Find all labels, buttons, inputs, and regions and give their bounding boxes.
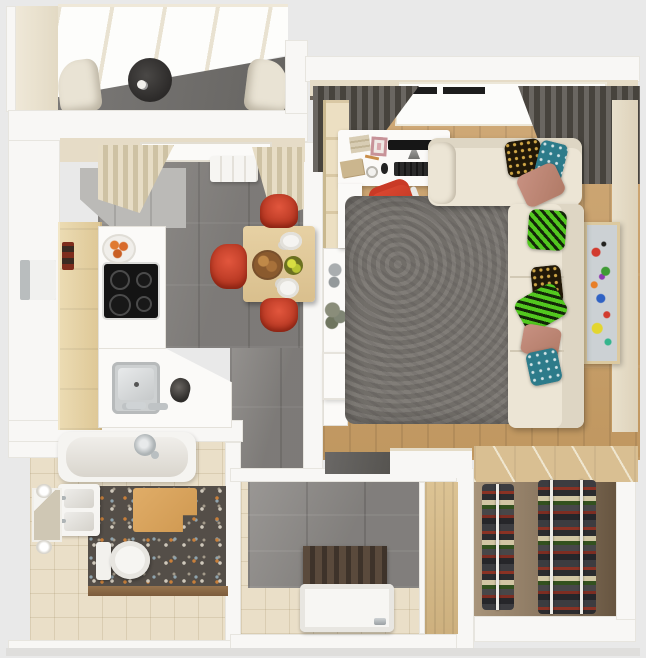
wall-closet-right	[616, 480, 636, 620]
kitchen-sink	[112, 362, 160, 414]
kitchen-floor-lower	[230, 348, 305, 470]
shower-slat-panel	[303, 546, 387, 588]
clothes-rack	[538, 480, 596, 614]
pink-notebook	[370, 136, 387, 156]
sink-faucet	[126, 402, 146, 409]
bathtub-basin	[66, 437, 188, 477]
fridge	[20, 260, 56, 300]
cooktop-burner	[109, 294, 131, 316]
balcony-left-wall	[16, 6, 60, 112]
desk-cup	[366, 166, 378, 178]
bathroom-wood-edge	[88, 586, 228, 596]
cooktop-burner	[136, 296, 152, 312]
coffee-cup	[137, 80, 146, 89]
clothes-rail	[496, 484, 499, 610]
wall-living-top	[305, 56, 640, 82]
wall-closet-bottom	[474, 616, 636, 642]
kitchen-radiator	[210, 156, 258, 182]
dining-chair-bottom	[260, 298, 298, 332]
dining-chair-left	[210, 244, 247, 289]
clothes-rail	[550, 480, 553, 614]
cooktop	[104, 264, 158, 318]
spice-jars	[62, 242, 74, 270]
floorplan-scene	[0, 0, 646, 658]
corridor-tile-threshold	[325, 452, 393, 474]
toilet-tank	[96, 542, 111, 580]
basin	[64, 512, 94, 531]
shower-door-panel	[425, 482, 458, 634]
clothes-rail	[580, 480, 583, 614]
bread-bowl	[254, 252, 281, 278]
sink-drain	[134, 382, 139, 387]
dinner-plate	[280, 232, 302, 250]
basin	[64, 489, 94, 508]
toilet-bowl	[110, 541, 150, 579]
pillow-teal	[525, 347, 563, 387]
oranges-bowl	[104, 236, 134, 262]
dining-chair-top	[260, 194, 298, 228]
outer-shadow	[6, 648, 640, 656]
books-stack	[349, 135, 371, 154]
wall-sconce	[36, 484, 52, 498]
balcony-side-table	[128, 58, 172, 102]
wall-mid-vertical	[303, 142, 323, 470]
fruit-bowl	[284, 256, 303, 275]
shower-head	[134, 434, 156, 456]
console-vases	[326, 262, 344, 290]
vanity-sink	[58, 484, 100, 536]
wall-closet-left	[456, 468, 474, 654]
corridor-partition	[390, 448, 472, 478]
shag-rug	[345, 196, 521, 424]
wall-outer-left	[6, 6, 16, 112]
abstract-painting	[584, 222, 620, 364]
window-frame-bar	[443, 87, 485, 94]
bathtub	[58, 432, 196, 482]
dinner-plate	[277, 278, 299, 298]
wall-sconce	[36, 540, 52, 554]
pillow-green-zigzag	[527, 209, 568, 252]
cooktop-burner	[136, 272, 152, 288]
clothes-rack	[482, 484, 514, 610]
sofa-armrest	[428, 142, 456, 204]
shower-drain	[374, 618, 386, 625]
mouse	[381, 163, 388, 174]
closet-top-shelf	[474, 446, 638, 482]
cooktop-burner	[110, 270, 130, 290]
